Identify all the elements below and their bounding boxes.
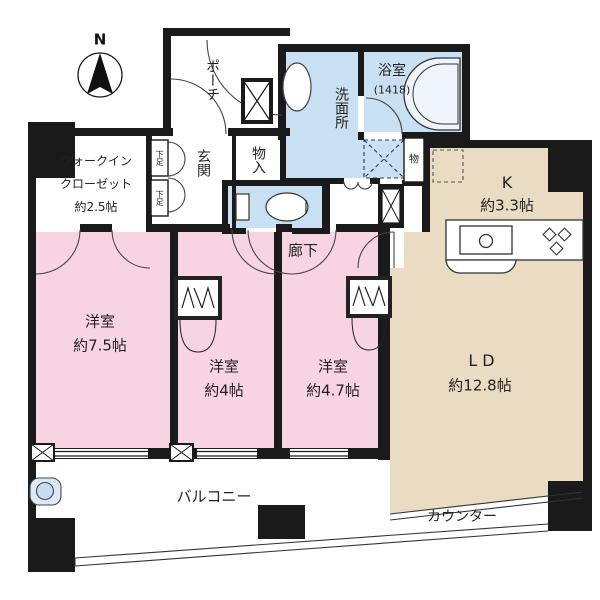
- corridor-label: 廊下: [288, 242, 318, 259]
- room-floors: [36, 52, 583, 514]
- bathroom-size: (1418): [374, 85, 411, 98]
- genkan-label: 玄関: [195, 149, 211, 177]
- wic-label-2: クローゼット: [60, 178, 132, 192]
- slop-sink-icon: [30, 478, 61, 505]
- shoe-door-arc-2: [168, 178, 185, 212]
- living-size: 約12.8帖: [448, 377, 511, 394]
- bedroom1-label: 洋室: [85, 313, 115, 330]
- mono-label: 物: [409, 154, 419, 166]
- bedroom2-label: 洋室: [209, 358, 239, 375]
- bedroom1-size: 約7.5帖: [73, 337, 127, 354]
- kitchen-label: K: [502, 174, 513, 192]
- floorplan-drawing: [0, 0, 600, 600]
- shoe-upper-label: 下足: [155, 150, 164, 166]
- kitchen-entry-floor: [404, 232, 430, 268]
- bedroom3-size: 約4.7帖: [306, 382, 360, 399]
- living-label: LD: [468, 352, 499, 370]
- compass-n-label: N: [94, 31, 107, 48]
- toilet-icon: [236, 193, 308, 221]
- shoe-lower-label: 下足: [155, 190, 164, 206]
- bathroom-label: 浴室: [378, 63, 406, 79]
- vanity-sink-icon: [283, 63, 311, 111]
- porch-label: ポーチ: [204, 59, 220, 101]
- pipe-space-icon: [382, 189, 400, 223]
- meter-box-icon: [243, 80, 271, 122]
- washroom-label: 洗面所: [333, 87, 349, 129]
- kitchen-size: 約3.3帖: [480, 197, 534, 214]
- railing-lines: [75, 492, 583, 566]
- windows: [46, 449, 348, 458]
- wic-label-1: ウォークイン: [60, 155, 132, 169]
- compass-icon: [78, 53, 122, 97]
- floorplan: N ポーチ ウォークイン クローゼット 約2.5帖 玄関 下足 下足 物入 洗面…: [0, 0, 600, 600]
- balcony-label: バルコニー: [177, 488, 252, 505]
- counter-label: カウンター: [427, 509, 497, 525]
- washroom-floor-strip: [358, 140, 404, 178]
- washroom-folding-door: [344, 182, 372, 189]
- bedroom2-size: 約4帖: [204, 382, 244, 399]
- shoe-door-arc-1: [168, 142, 185, 176]
- bedroom3-label: 洋室: [318, 358, 348, 375]
- bedroom2-floor: [178, 232, 274, 448]
- wic-label-3: 約2.5帖: [74, 201, 117, 215]
- mono-ire-label: 物入: [250, 146, 266, 174]
- bedroom3-floor: [282, 232, 378, 448]
